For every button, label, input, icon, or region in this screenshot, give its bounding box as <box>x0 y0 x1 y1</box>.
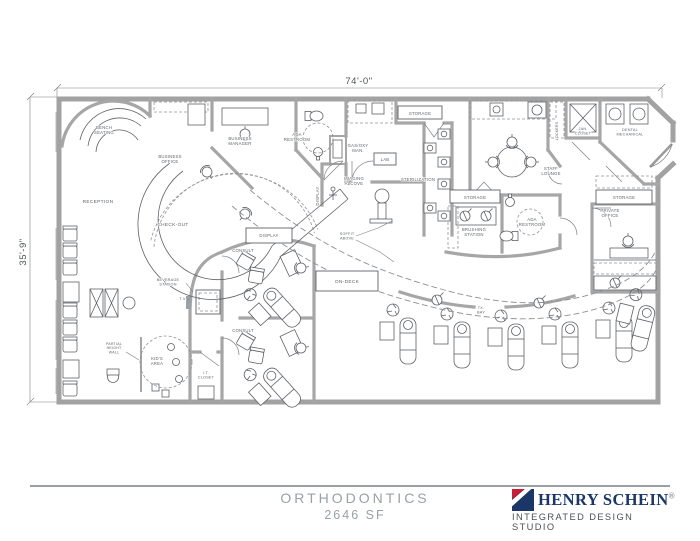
label-kids-area: KID'SAREA <box>151 356 164 366</box>
henry-schein-logo-icon <box>512 489 534 511</box>
brand-block: HENRY SCHEIN® INTEGRATED DESIGN STUDIO <box>512 489 677 532</box>
label-business-manager: BUSINESSMANAGER <box>228 136 251 146</box>
title-block-divider <box>30 485 670 487</box>
label-consult-2: CONSULT <box>232 328 254 333</box>
label-storage-top: STORAGE <box>409 111 431 116</box>
label-on-deck: ON-DECK <box>335 279 360 285</box>
title-block: ORTHODONTICS 2646 SF <box>180 490 530 522</box>
brand-tagline: INTEGRATED DESIGN STUDIO <box>512 512 677 532</box>
floor-plan-drawing: 74'-0" 35'-9" <box>0 0 700 541</box>
label-check-out: CHECK-OUT <box>157 222 188 228</box>
project-area: 2646 SF <box>180 508 530 522</box>
label-brushing-station: BRUSHINGSTATION <box>462 227 487 237</box>
lounge-table <box>497 147 527 177</box>
manager-desk <box>222 108 268 125</box>
project-title: ORTHODONTICS <box>180 490 530 506</box>
dimension-height: 35'-9" <box>18 238 29 265</box>
floor-plan-sheet: 74'-0" 35'-9" <box>0 0 700 541</box>
label-display-consult: DISPLAY <box>259 233 278 238</box>
kids-area-rug <box>140 336 192 388</box>
label-consult-1: CONSULT <box>232 248 254 253</box>
label-soffit-above: SOFFITABOVE <box>340 232 355 240</box>
label-storage-right: STORAGE <box>613 195 635 200</box>
label-business-office: BUSINESSOFFICE <box>158 154 181 164</box>
pano-xray <box>375 189 389 203</box>
label-staff-lounge: STAFFLOUNGE <box>541 166 560 176</box>
label-tx-bay: TX.BAY <box>477 306 485 314</box>
brand-name: HENRY SCHEIN® <box>538 490 675 510</box>
label-display-wall: DISPLAY <box>315 186 320 205</box>
label-private-office: PRIVATEOFFICE <box>600 208 619 218</box>
label-partial-height-wall: PARTIALHEIGHTWALL <box>106 342 122 354</box>
label-beverage-station: BEVERAGESTATION <box>157 278 180 286</box>
label-tv: T.V. <box>180 297 187 301</box>
label-dental-mechanical: DENTALMECHANICAL <box>617 128 644 136</box>
label-lockers: LOCKERS <box>555 121 559 140</box>
label-reception: RECEPTION <box>83 199 114 205</box>
label-bench-seating: BENCHSEATING <box>94 125 114 135</box>
label-ada-restroom-2: ADARESTROOM <box>519 217 546 227</box>
label-imaging-alcove: IMAGINGALCOVE <box>344 176 364 186</box>
label-gas-oxy: GAS/OXYMAN. <box>348 143 369 153</box>
label-lab: LAB <box>381 157 390 162</box>
copier <box>188 104 205 125</box>
label-it-closet: I.T.CLOSET <box>198 371 215 379</box>
registered-mark: ® <box>669 492 675 501</box>
label-ada-restroom-1: ADARESTROOM <box>284 132 311 142</box>
private-office-desk <box>610 248 648 258</box>
dimension-width: 74'-0" <box>345 76 372 87</box>
label-storage-mid: STORAGE <box>464 195 486 200</box>
label-sterilization: STERILIZATION <box>401 177 435 182</box>
